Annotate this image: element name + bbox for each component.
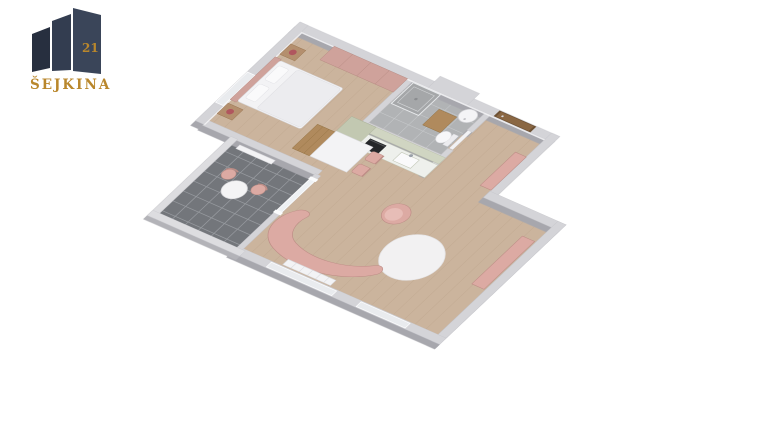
logo-number: 21 [82, 41, 99, 55]
floorplan-render: 21 ŠEJKINA [0, 0, 768, 432]
logo-building-middle [52, 14, 71, 71]
apartment-plan [112, 22, 628, 344]
brand-logo: 21 ŠEJKINA [26, 4, 144, 96]
logo-brand-text: ŠEJKINA [30, 76, 111, 93]
logo-building-left [32, 27, 50, 72]
